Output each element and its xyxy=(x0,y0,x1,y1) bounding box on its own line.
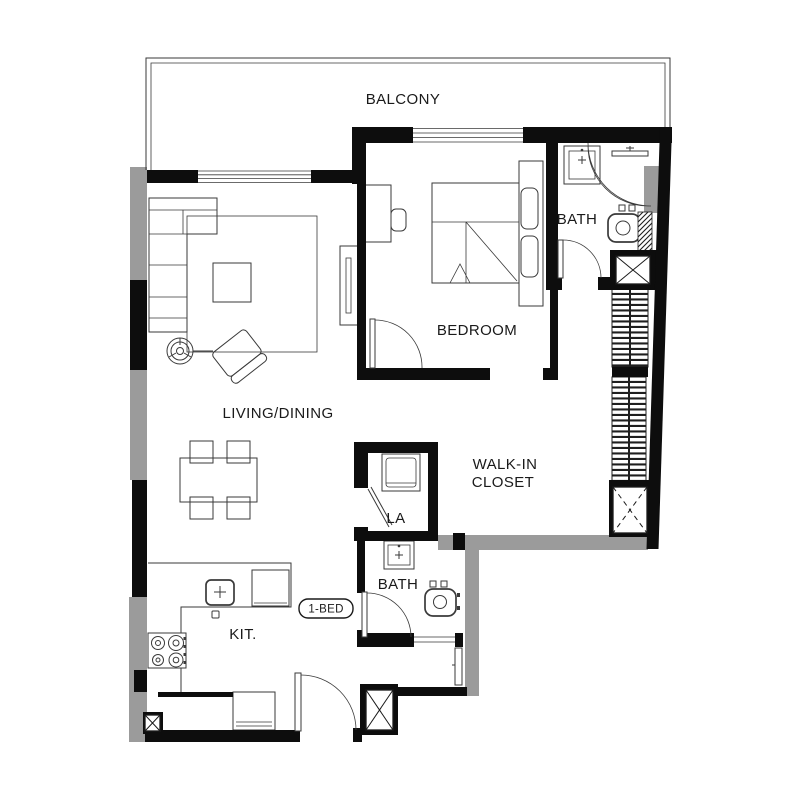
unit-type-badge: 1-BED xyxy=(299,599,353,618)
living-dining-label: LIVING/DINING xyxy=(222,405,333,422)
fridge xyxy=(252,570,289,606)
sofa xyxy=(149,198,217,332)
living-window xyxy=(198,171,311,182)
shaft-box xyxy=(366,690,393,730)
dining-chair xyxy=(190,497,213,519)
bath-bottom-label: BATH xyxy=(378,576,419,593)
dining-chair xyxy=(190,441,213,463)
desk xyxy=(364,185,391,242)
dining-chair xyxy=(227,441,250,463)
toilet-icon xyxy=(425,581,460,616)
shaft-box xyxy=(145,715,160,731)
niche-door xyxy=(452,648,462,685)
kitchen-sink-icon xyxy=(206,580,234,605)
laundry-label: LA xyxy=(386,510,405,527)
walk-in-closet-label: WALK-IN xyxy=(473,456,538,473)
hatched-wall xyxy=(638,212,652,254)
wardrobe xyxy=(612,288,648,367)
kitchen xyxy=(148,563,291,730)
bath-top-label: BATH xyxy=(557,211,598,228)
washer-icon xyxy=(382,454,420,491)
shaft-box xyxy=(613,487,647,533)
floor-lamp-icon xyxy=(167,338,213,364)
knob xyxy=(212,611,219,618)
bath-top-door xyxy=(558,240,601,278)
pillow xyxy=(521,236,538,277)
bedroom-door xyxy=(370,319,422,368)
coffee-table xyxy=(213,263,251,302)
bedroom xyxy=(364,161,543,306)
balcony-label: BALCONY xyxy=(366,91,441,108)
base-cabinet xyxy=(233,692,275,730)
kitchen-label: KIT. xyxy=(229,626,256,643)
bath-bottom-door xyxy=(362,592,411,637)
rug xyxy=(187,216,317,352)
dining-chair xyxy=(227,497,250,519)
unit-type-badge-label: 1-BED xyxy=(308,604,343,616)
bedroom-window xyxy=(413,129,523,143)
wardrobe xyxy=(612,377,646,482)
walk-in-closet-label: CLOSET xyxy=(472,474,534,491)
living-dining xyxy=(149,198,358,519)
floor-plan-drawing: BALCONY BEDROOM BATH LIVING/DINING WALK-… xyxy=(0,0,800,800)
floor-plan-page: BALCONY BEDROOM BATH LIVING/DINING WALK-… xyxy=(0,0,800,800)
bedroom-label: BEDROOM xyxy=(437,322,517,339)
dining-table xyxy=(180,458,257,502)
desk-chair xyxy=(391,209,406,231)
pillow xyxy=(521,188,538,229)
bath-sink-icon xyxy=(384,541,414,569)
dining-set xyxy=(180,441,257,519)
bath-sink-icon xyxy=(564,146,600,184)
tv-unit xyxy=(340,246,358,325)
armchair xyxy=(211,328,268,385)
shaft-box xyxy=(616,256,650,284)
niche-opening xyxy=(414,637,455,642)
stove-icon xyxy=(148,633,186,668)
bed xyxy=(432,161,543,306)
entry-door xyxy=(295,673,356,731)
